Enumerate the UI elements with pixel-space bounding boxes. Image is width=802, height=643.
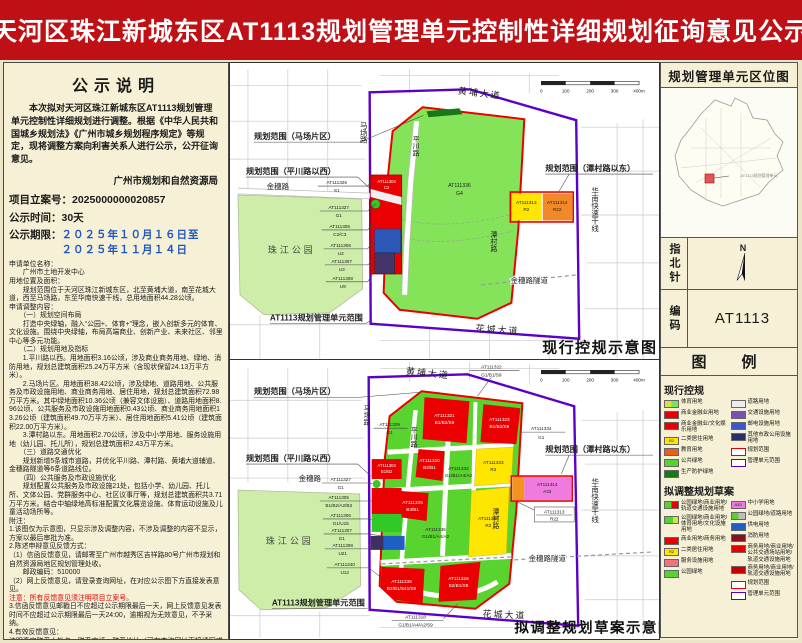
parcel-use: U9: [340, 284, 346, 289]
range-leader: [246, 177, 371, 189]
legend-label: 供电用地: [748, 522, 770, 528]
road-label: 马场路: [359, 121, 368, 144]
parcel-use: B2/B1/S41/S9: [387, 586, 417, 591]
legend-swatch: [731, 459, 746, 467]
legend-label: 商务用地/商业用地/轨道交通设施用地: [748, 565, 795, 578]
unit-label: AT1113规划管理单元: [740, 172, 777, 178]
parcel-code: AT111326: [326, 180, 347, 185]
parcel-306: [372, 514, 402, 532]
parcel-code: AT111336: [448, 183, 471, 189]
parcel-use: G1/B1/A4/A2/S9: [398, 623, 433, 628]
parcel-use: R2: [490, 467, 496, 472]
parcel-code: AT111332: [448, 466, 469, 471]
legend-swatch: [664, 411, 679, 419]
road-label: 平川路: [410, 426, 417, 448]
legend-swatch: [731, 400, 746, 408]
legend-item: 公园绿地: [664, 569, 728, 578]
parcel-code: AT111339: [379, 422, 400, 427]
parcel-305: [372, 488, 402, 514]
range-label: 规划范围（平川路以西）: [246, 453, 336, 463]
scale-tick: 400m: [633, 88, 645, 93]
parcel-code: AT111304: [377, 179, 396, 184]
parcel-code: AT111307: [331, 528, 352, 533]
range-label: 公示期限：: [9, 229, 62, 241]
scale-bar: 0 100 200 300 400m: [540, 81, 645, 93]
road-label: 花城大道: [482, 608, 526, 621]
parcel-313-service: [512, 477, 524, 500]
notice-detail-line: 注明真实联系人姓名、联系电话、联系地址（可在查询网址直接填写或下载陈述申辩意见反…: [9, 638, 223, 640]
notice-detail-line: 申请调整内容：: [9, 304, 223, 313]
parcel-use: A33: [543, 489, 552, 494]
notice-detail-line: 4.有效反馈意见：: [9, 629, 223, 638]
parcel-code: AT111333: [483, 460, 504, 465]
legend-swatch: [664, 559, 679, 567]
map-title: 拟调整规划草案示意图: [514, 619, 659, 637]
parcel-code: AT111318: [405, 615, 426, 620]
legend-draft-right: A33 中小学用地 公园绿地/道路用地 供电用地: [731, 500, 795, 602]
parcel-use: C2/C3: [333, 232, 347, 237]
legend-label: 道路用地: [748, 399, 770, 405]
range-label: 规划范围（潭村路以东）: [545, 444, 635, 454]
legend-label: 服务设施用地: [681, 558, 713, 564]
legend-item: 商业用地/商务用地: [664, 536, 728, 545]
road-label: 花城大道: [475, 322, 520, 336]
parcel-power: [384, 536, 405, 550]
scale-tick: 200: [586, 88, 594, 93]
notice-detail-line: 3.潭村路以东。用地面积2.70公顷，涉及中小学用地、服务设施用地（幼儿园、托儿…: [9, 432, 223, 449]
legend-item: 商务用地/商业用地/公共交通场站用地/轨道交通设施用地: [731, 544, 795, 563]
road-label: 平川路: [412, 135, 419, 157]
legend-item: R2 二类居住用地: [664, 436, 728, 445]
parcel-code: AT111338: [391, 579, 412, 584]
compass-label-text: 指北针: [666, 243, 682, 285]
parcel-code: AT111328: [448, 576, 469, 581]
notice-detail-line: 3.信函反馈意见邮戳日不应超过公示期限最后一天，网上反馈意见发表时间不应超过公示…: [9, 603, 223, 629]
parcel-code: AT111327: [328, 205, 349, 210]
parcel-use: B3/B1: [406, 507, 419, 512]
district-outline: [675, 98, 783, 206]
parcel-use: G1/B1/A4/A2: [422, 534, 450, 539]
legend-swatch: [664, 422, 679, 430]
range-label: AT1113规划管理单元范围: [270, 313, 363, 323]
parcel-code: AT111314: [547, 200, 568, 205]
west-strip-blue: [375, 229, 401, 253]
legend-label: 规划范围: [748, 447, 770, 453]
parcel-use: U2: [338, 251, 344, 256]
legend-swatch: [664, 470, 679, 478]
parcel-use: G1/B1/S9: [481, 372, 502, 377]
notice-detail-line: 1.平川路以西。用地面积3.16公顷，涉及商业商务用地、绿地、消防用地，规划总建…: [9, 355, 223, 381]
road-label: 马场路: [363, 404, 370, 426]
legend-swatch: [664, 448, 679, 456]
legend-item: 其他市政公用设施用地: [731, 432, 795, 445]
notice-detail-line: （二）规划用地及指标: [9, 346, 223, 355]
legend-item: R2 二类居住用地: [664, 547, 728, 556]
legend-label: 消防用地: [748, 533, 770, 539]
code-row: 编码 AT1113: [660, 290, 798, 348]
road-label: 潭村路: [492, 507, 499, 530]
unit-highlight: [705, 174, 714, 183]
legend-swatch: R2: [664, 548, 679, 556]
scale-tick: 200: [586, 377, 594, 382]
legend-item: 公园绿地/商业用地/体育用地/文化设施用地: [664, 515, 728, 534]
road-label: 金穗路: [267, 181, 290, 191]
parcel-327: [373, 480, 381, 488]
legend-label: 规划范围: [748, 580, 770, 586]
scale-tick: 0: [540, 377, 543, 382]
parcel-use: B1/B2/A2/B3: [325, 503, 352, 508]
legend-item: 商务用地/商业用地/轨道交通设施用地: [731, 565, 795, 578]
legend-item: 服务设施用地: [664, 558, 728, 567]
notice-detail-line: （三）道路交通优化: [9, 449, 223, 458]
parcel-code: AT111334: [531, 426, 552, 431]
legend-label: 中小学用地: [748, 500, 775, 506]
compass: N: [688, 238, 797, 289]
legend-label: 二类居住用地: [681, 547, 713, 553]
legend-label: 教育用地: [681, 447, 703, 453]
range-leader: [545, 455, 653, 474]
legend-swatch: [731, 581, 746, 589]
compass-n-label: N: [739, 243, 746, 253]
notice-detail-line: 1.该图仅为示意图，只显示涉及调整内容，不涉及调整的内容不显示，方案以最后审批为…: [9, 526, 223, 543]
legend-swatch: [731, 422, 746, 430]
legend-item: 供电用地: [731, 522, 795, 531]
legend-label: 商业金融业用地: [681, 410, 719, 416]
parcel-use: B2/B1: [423, 465, 436, 470]
scale-tick: 100: [562, 377, 570, 382]
notice-detail-line: 规划范围位于天河区珠江新城东区，北至黄埔大道，南至花城大道，西至马场路，东至华南…: [9, 287, 223, 304]
notice-detail-line: 用地位置及面积：: [9, 278, 223, 287]
legend-label: 商业用地/商务用地: [681, 536, 726, 542]
range-line: 公示期限：２０２５年１０月１６日至２０２５年１１月１４日: [9, 227, 223, 257]
parcel-use: B1/B2/S9: [435, 420, 455, 425]
parcel-code: AT111307: [331, 259, 352, 264]
legend-label: 体育用地: [681, 399, 703, 405]
notice-detail-line: 打造中央绿轴，融入“公园+、体育+”理念，嵌入创新多元的体育、文化设施。围绕中央…: [9, 321, 223, 347]
page-title: 天河区珠江新城东区AT1113规划管理单元控制性详细规划征询意见公示: [0, 12, 802, 48]
compass-row: 指北针 N: [660, 238, 798, 290]
notice-detail-line: 广州市土地开发中心: [9, 269, 223, 278]
range-date-1: ２０２５年１０月１６日至: [62, 229, 200, 241]
legend-current-left: 体育用地 商业金融业用地 商业金融业/文化娱乐用地 R2 二类居住: [664, 399, 728, 480]
road-label: 金穗路: [299, 473, 322, 483]
map-draft: 珠江公园 AT11: [230, 360, 659, 638]
parcel-use: R22: [550, 516, 559, 521]
legend-swatch: [731, 512, 746, 520]
notice-details: 申请单位名称： 广州市土地开发中心 用地位置及面积： 规划范围位于天河区珠江新城…: [9, 261, 223, 640]
parcel-code: AT111313: [516, 200, 537, 205]
agency-name: 广州市规划和自然资源局: [4, 173, 218, 187]
parcel-use: G1: [338, 485, 345, 490]
legend-swatch: [664, 516, 679, 524]
range-label: 规划范围（马场片区）: [254, 386, 336, 396]
legend-draft-left: 公园绿地/商业用地/轨道交通设施用地 公园绿地/商业用地/体育用地/文化设施用地…: [664, 500, 728, 602]
district-map: AT1113规划管理单元: [661, 88, 797, 236]
parcel-code: AT111327: [330, 477, 351, 482]
north-arrow-icon: N: [718, 241, 768, 287]
notice-detail-line: （2）网上反馈意见，请登录查询网址，在对应公示图下方直接发表意见。: [9, 578, 223, 595]
parcel-use: U12: [340, 570, 349, 575]
parcel-code: AT111340: [334, 562, 355, 567]
notice-detail-line: 2.马场片区。用地面积38.42公顷，涉及绿地、道路用地、公共服务及市政设施用地…: [9, 381, 223, 432]
legend-label: 其他市政公用设施用地: [748, 432, 795, 445]
parcel-use: G1: [387, 430, 394, 435]
legend-item: 邮电设施用地: [731, 421, 795, 430]
legend-item: 商业金融业用地: [664, 410, 728, 419]
notice-detail-line: （1）信函反馈意见，请邮寄至广州市越秀区吉祥路80号广州市规划和自然资源局地区规…: [9, 552, 223, 569]
map-title: 现行控规示意图: [542, 339, 657, 357]
case-number-value: 2025000000020857: [72, 194, 165, 206]
range-date-2: ２０２５年１１月１４日: [62, 244, 189, 256]
compass-label: 指北针: [661, 238, 688, 289]
legend-label: 公园绿地/道路用地: [748, 511, 793, 517]
parcel-code: AT111335: [402, 500, 423, 505]
parcel-code: AT111336: [425, 527, 446, 532]
unit-code-value: AT1113: [715, 310, 770, 327]
legend-item: 规划范围: [731, 580, 795, 589]
parcel-use: U21: [338, 551, 347, 556]
legend-item: 教育用地: [664, 447, 728, 456]
road-label: 黄埔大道: [457, 85, 502, 101]
legend-item: 公共绿地: [664, 458, 728, 467]
legend-swatch: A33: [731, 501, 746, 509]
legend-item: 体育用地: [664, 399, 728, 408]
scale-bar: 0 100 200 300 400m: [540, 370, 645, 382]
parcel-code: AT111314: [537, 482, 558, 487]
parcel-use: G1: [336, 213, 343, 218]
legend-label: 商业金融业/文化娱乐用地: [681, 421, 728, 434]
parcel-code: AT111321: [434, 413, 455, 418]
legend-label: 管理单元范围: [748, 591, 780, 597]
parcel-use: G1/U15: [333, 521, 350, 526]
legend-swatch: [731, 448, 746, 456]
code-label: 编码: [661, 290, 688, 347]
parcel-code: AT111306: [330, 243, 351, 248]
park-label: 珠江公园: [268, 244, 316, 255]
road-label: 金穗路隧道: [511, 275, 549, 285]
parcel-use: B1/B2/S9: [489, 424, 509, 429]
banner: 天河区珠江新城东区AT1113规划管理单元控制性详细规划征询意见公示: [0, 0, 802, 60]
parcel-use: C2: [384, 185, 390, 190]
road-label: 黄埔大道: [406, 365, 451, 381]
legend-item: 生产防护绿地: [664, 469, 728, 478]
parcel-code: AT111323: [489, 417, 510, 422]
map-current-panel: 珠江公园 AT111304 C2 AT111313 R2 AT111314 R2…: [229, 62, 660, 360]
legend-swatch: R2: [664, 437, 679, 445]
legend-label: 公园绿地/商业用地/体育用地/文化设施用地: [681, 515, 728, 534]
legend-swatch: [664, 400, 679, 408]
legend-item: 管理单元范围: [731, 458, 795, 467]
period-label: 公示时间：: [9, 212, 62, 224]
parcel-code: AT111310: [419, 458, 440, 463]
legend-swatch: [664, 459, 679, 467]
parcel-use: G1: [538, 435, 545, 440]
legend-label: 管理单元范围: [748, 458, 780, 464]
parcel-use: U3: [339, 267, 345, 272]
parcel-use: G1/B1/A4/A2: [445, 473, 473, 478]
west-strip-utility: [375, 253, 395, 274]
parcel-code: AT111308: [332, 276, 353, 281]
map-current: 珠江公园 AT111304 C2 AT111313 R2 AT111314 R2…: [230, 63, 659, 359]
legend-label: 邮电设施用地: [748, 421, 780, 427]
road-label: 华南快速干线: [590, 477, 599, 523]
legend-swatch: [664, 501, 679, 509]
jinsui-road: [238, 191, 370, 196]
notice-heading: 公示说明: [4, 72, 228, 96]
legend-swatch: [731, 566, 746, 574]
scale-tick: 300: [611, 377, 619, 382]
range-label: 规划范围（平川路以西）: [246, 166, 336, 176]
legend-item: 公园绿地/道路用地: [731, 511, 795, 520]
legend-title: 图 例: [660, 348, 798, 376]
legend-label: 公共绿地: [681, 458, 703, 464]
legend-label: 生产防护绿地: [681, 469, 713, 475]
parcel-code: AT111304: [377, 463, 396, 468]
parcel-code: AT111305: [328, 495, 349, 500]
parcel-use: B2/B1/S9: [449, 583, 469, 588]
legend-section-current: 现行控规: [664, 382, 794, 397]
legend-current-right: 道路用地 交通设施用地 邮电设施用地 其他市政公用设施用地: [731, 399, 795, 480]
legend-swatch: [731, 523, 746, 531]
legend-swatch: [731, 545, 746, 553]
period-line: 公示时间：30天: [9, 210, 223, 225]
period-value: 30天: [62, 212, 84, 224]
legend-item: 交通设施用地: [731, 410, 795, 419]
legend-item: 管理单元范围: [731, 591, 795, 600]
legend-swatch: [731, 433, 746, 441]
parcel-code: AT111308: [332, 543, 353, 548]
legend-label: 公园绿地: [681, 569, 703, 575]
park-label: 珠江公园: [266, 535, 314, 546]
legend-label: 公园绿地/商业用地/轨道交通设施用地: [681, 500, 728, 513]
legend-item: 规划范围: [731, 447, 795, 456]
road-label: 金穗路隧道: [529, 553, 567, 563]
parcel-use: R2: [485, 523, 491, 528]
road-label: 华南快速干线: [590, 186, 599, 232]
legend-item: 消防用地: [731, 533, 795, 542]
notice-detail-line: 邮政编码：510000: [9, 569, 223, 578]
parcel-use: R2: [523, 207, 529, 212]
legend-swatch: [664, 537, 679, 545]
legend-swatch: [664, 570, 679, 578]
notice-paragraph: 本次拟对天河区珠江新城东区AT1113规划管理单元控制性详细规划进行调整。根据《…: [11, 102, 221, 166]
legend-label: 交通设施用地: [748, 410, 780, 416]
sidebar: 规划管理单元区位图 AT1113规划管理单元 指北针 N 编码 AT1113: [660, 62, 798, 640]
parcel-code: AT111313: [544, 509, 565, 514]
notice-panel: 公示说明 本次拟对天河区珠江新城东区AT1113规划管理单元控制性详细规划进行调…: [3, 62, 229, 640]
legend-swatch: [731, 534, 746, 542]
scale-tick: 400m: [633, 377, 645, 382]
legend-section-draft: 拟调整规划草案: [664, 483, 794, 498]
maps-column: 珠江公园 AT111304 C2 AT111313 R2 AT111314 R2…: [229, 62, 660, 640]
notice-detail-line: （一）规划空间布局: [9, 312, 223, 321]
notice-detail-line: 2.陈述申辩意见反馈方式：: [9, 543, 223, 552]
legend-item: 公园绿地/商业用地/轨道交通设施用地: [664, 500, 728, 513]
legend-item: 道路用地: [731, 399, 795, 408]
scale-tick: 300: [611, 88, 619, 93]
case-number-line: 项目立案号：2025000000020857: [9, 192, 223, 207]
notice-detail-line: 附注：: [9, 518, 223, 527]
legend-item: 商业金融业/文化娱乐用地: [664, 421, 728, 434]
case-number-label: 项目立案号：: [9, 194, 72, 206]
parcel-code: AT111322: [481, 364, 502, 369]
parcel-use: G1: [339, 536, 346, 541]
range-label: AT1113规划管理单元范围: [272, 598, 365, 608]
scale-tick: 0: [540, 88, 543, 93]
range-label: 规划范围（潭村路以东）: [545, 163, 635, 173]
legend: 现行控规 体育用地 商业金融业用地 商业金融业/: [660, 376, 798, 638]
location-map-title: 规划管理单元区位图: [660, 62, 798, 88]
range-label: 规划范围（马场片区）: [254, 131, 336, 141]
parcel-code: AT111306: [330, 513, 351, 518]
scale-tick: 100: [562, 88, 570, 93]
parcel-use: B1/B2: [381, 469, 393, 474]
notice-detail-line: 规划新增5条城市道路，并优化平川路、潭村路、黄埔大道辅道、金穗路隧道等6条道路线…: [9, 458, 223, 475]
parcel-308: [371, 536, 384, 550]
parcel-code: AT111305: [329, 224, 350, 229]
legend-label: 二类居住用地: [681, 436, 713, 442]
legend-swatch: [731, 411, 746, 419]
code-label-text: 编码: [666, 305, 682, 333]
parcel-use: G4: [456, 191, 463, 197]
location-map: AT1113规划管理单元: [660, 88, 798, 238]
legend-label: 商务用地/商业用地/公共交通场站用地/轨道交通设施用地: [748, 544, 795, 563]
road-label: 潭村路: [490, 230, 497, 253]
legend-swatch: [731, 592, 746, 600]
legend-item: A33 中小学用地: [731, 500, 795, 509]
parcel-use: S1: [334, 188, 340, 193]
notice-detail-line: 规划配置公共服务及市政设施21处，包括小学、幼儿园、托儿所、文体公园、党群服务中…: [9, 483, 223, 517]
map-draft-panel: 珠江公园 AT11: [229, 360, 660, 640]
parcel-use: R22: [553, 207, 562, 212]
